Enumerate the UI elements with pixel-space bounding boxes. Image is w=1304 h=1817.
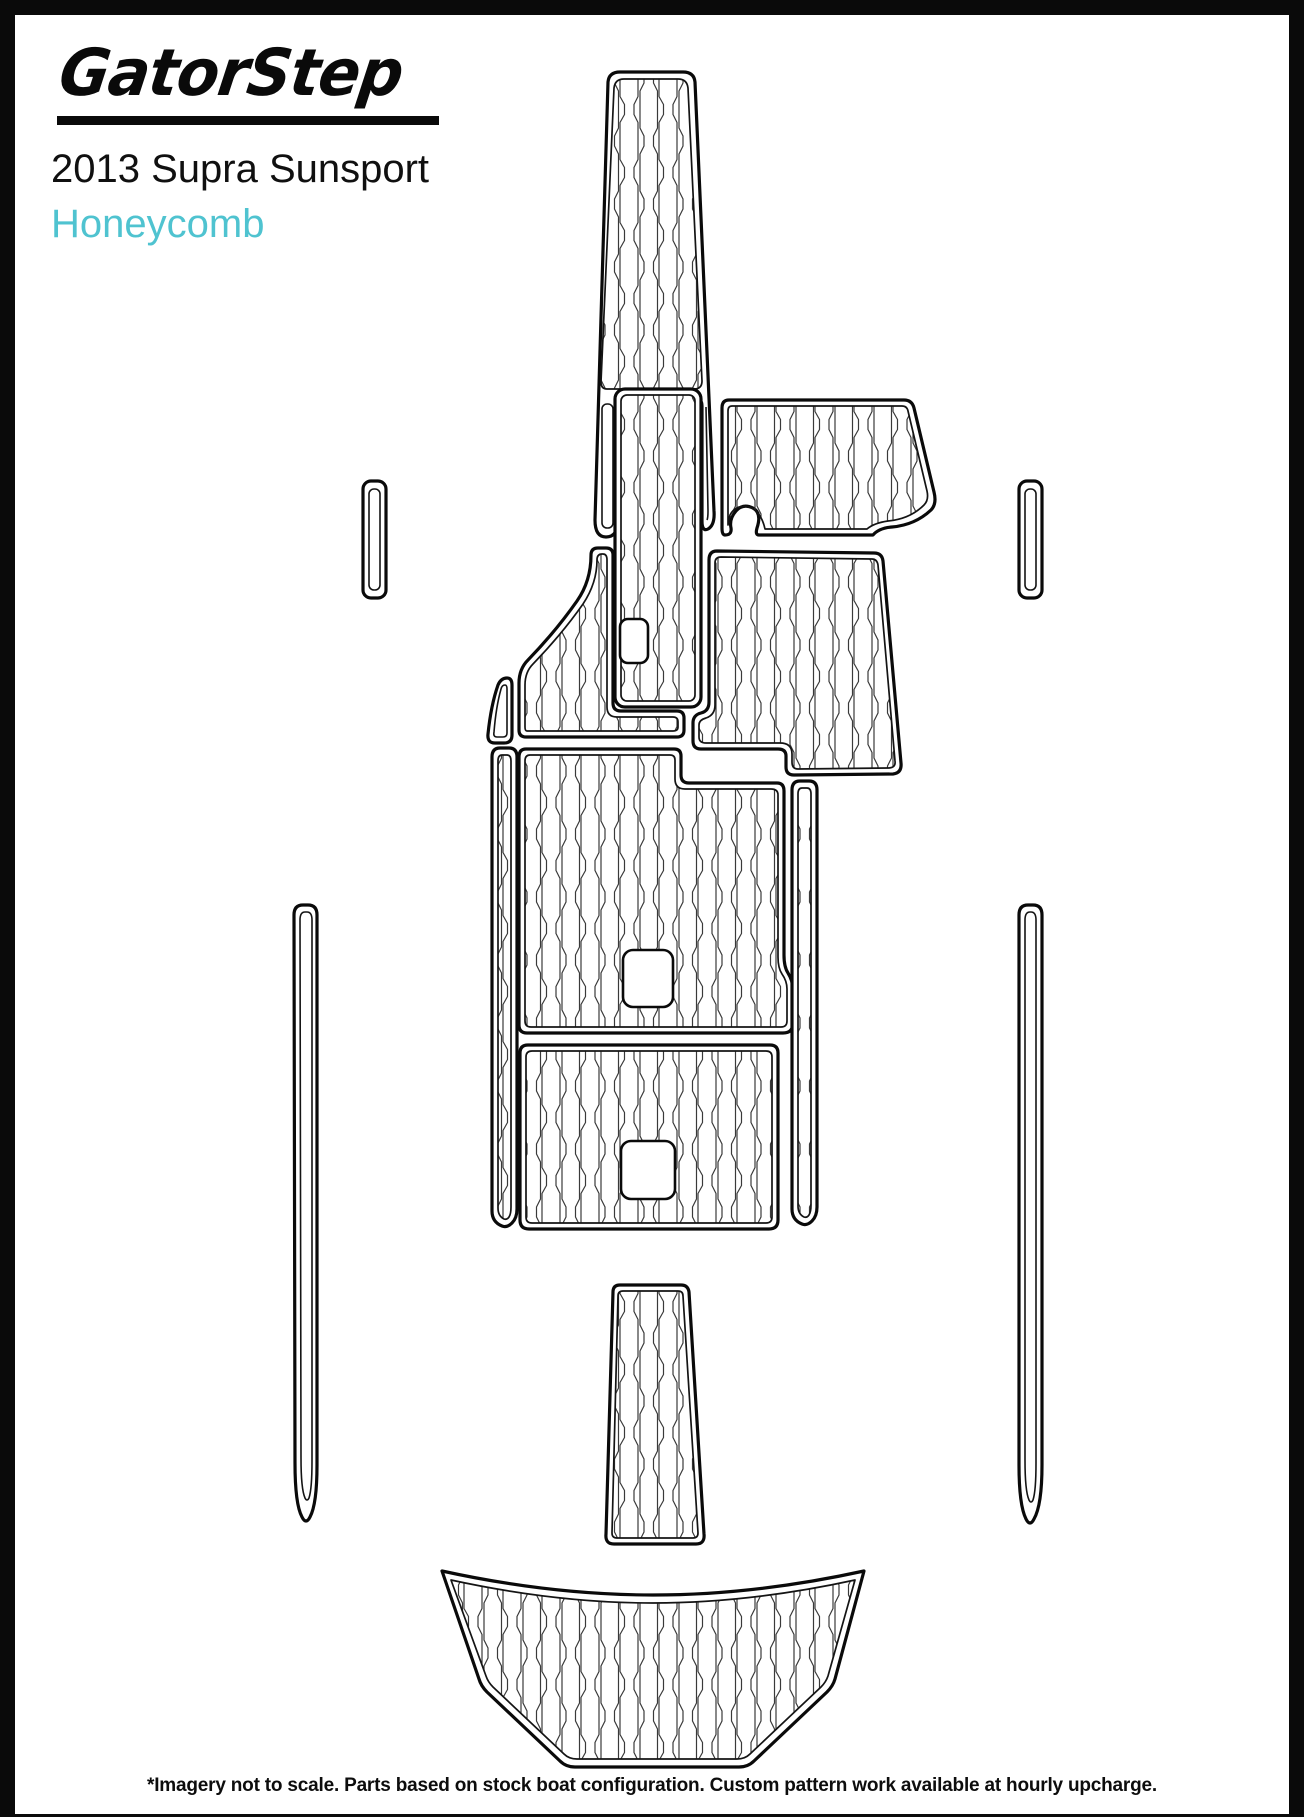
- transom-step-pad: [606, 1285, 704, 1544]
- side-pill-right: [1019, 481, 1042, 598]
- stern-sunpad-cutout: [621, 1141, 675, 1199]
- pattern-subtitle: Honeycomb: [51, 202, 439, 247]
- bow-runner-left-arm-slot: [602, 404, 613, 528]
- header: GatorStep 2013 Supra Sunsport Honeycomb: [55, 45, 439, 247]
- cockpit-main-cutout: [623, 950, 673, 1007]
- cockpit-main-pad: [519, 749, 793, 1033]
- side-pill-left: [363, 481, 386, 598]
- cockpit-runner-left: [492, 748, 517, 1227]
- starboard-bow-pad: [722, 400, 935, 535]
- page: GatorStep 2013 Supra Sunsport Honeycomb: [0, 0, 1304, 1817]
- swim-platform-pad: [442, 1571, 864, 1767]
- cockpit-ear-pad: [488, 678, 512, 743]
- cockpit-runner-right: [792, 781, 817, 1225]
- bow-step-pad: [615, 389, 701, 707]
- gunwale-strip-left: [294, 905, 317, 1521]
- disclaimer-text: *Imagery not to scale. Parts based on st…: [15, 1775, 1289, 1797]
- pad-layout-diagram: [15, 15, 1304, 1817]
- logo-underline: [57, 116, 439, 125]
- gatorstep-logo: GatorStep: [55, 40, 456, 108]
- starboard-mid-pad: [693, 551, 901, 775]
- bow-step-cutout: [620, 619, 648, 663]
- gunwale-strip-right: [1019, 905, 1042, 1523]
- stern-sunpad: [520, 1045, 778, 1229]
- page-title: 2013 Supra Sunsport: [51, 147, 439, 192]
